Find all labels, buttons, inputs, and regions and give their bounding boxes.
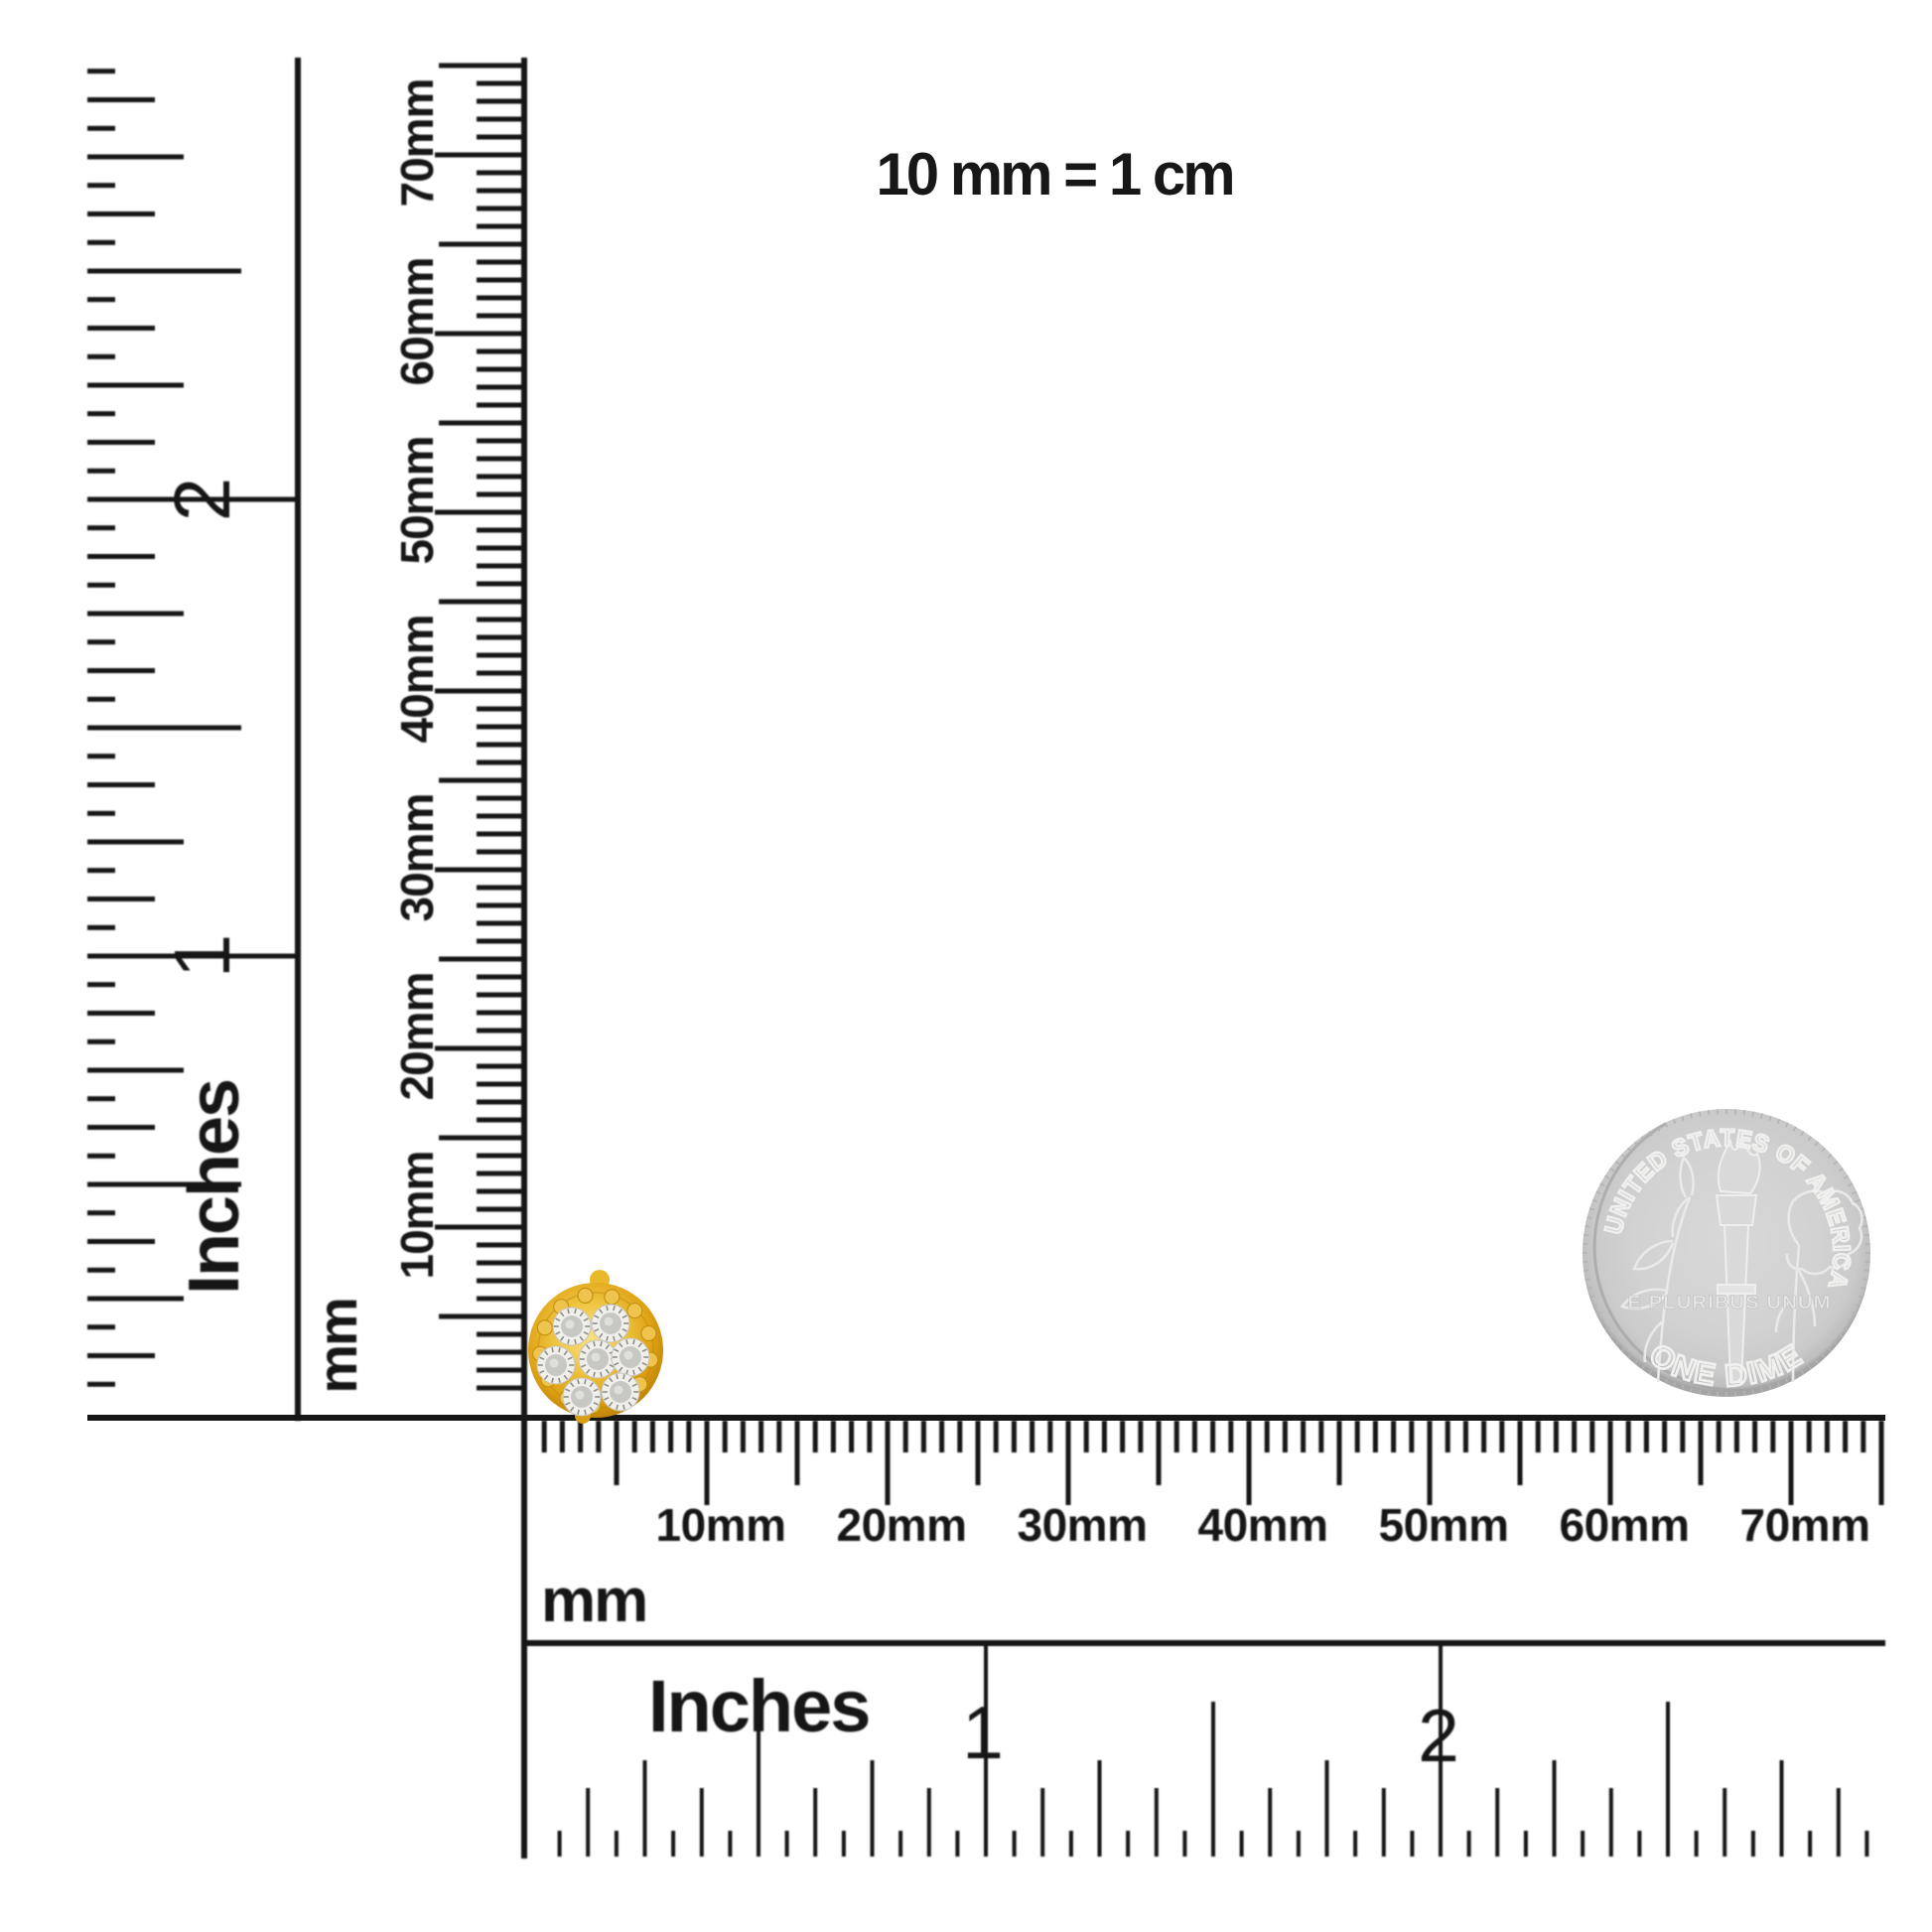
svg-text:1: 1	[962, 1691, 1004, 1774]
svg-text:mm: mm	[306, 1299, 368, 1394]
svg-text:30mm: 30mm	[391, 794, 443, 922]
svg-text:60mm: 60mm	[391, 258, 443, 386]
svg-text:40mm: 40mm	[1198, 1499, 1328, 1551]
svg-text:40mm: 40mm	[391, 616, 443, 744]
svg-text:2: 2	[158, 478, 246, 522]
svg-text:20mm: 20mm	[837, 1499, 967, 1551]
svg-text:1: 1	[158, 934, 246, 979]
svg-text:70mm: 70mm	[1740, 1499, 1870, 1551]
svg-text:20mm: 20mm	[391, 973, 443, 1101]
svg-text:30mm: 30mm	[1018, 1499, 1148, 1551]
svg-text:E PLURIBUS UNUM: E PLURIBUS UNUM	[1628, 1293, 1832, 1312]
svg-text:70mm: 70mm	[391, 79, 443, 207]
svg-text:Inches: Inches	[648, 1665, 869, 1747]
svg-text:10mm: 10mm	[656, 1499, 786, 1551]
svg-text:50mm: 50mm	[1379, 1499, 1509, 1551]
svg-text:60mm: 60mm	[1560, 1499, 1690, 1551]
svg-text:2: 2	[1418, 1694, 1459, 1777]
svg-text:10 mm = 1 cm: 10 mm = 1 cm	[876, 141, 1232, 207]
svg-text:Inches: Inches	[175, 1080, 254, 1295]
svg-text:mm: mm	[541, 1567, 646, 1635]
svg-text:50mm: 50mm	[391, 437, 443, 565]
svg-text:10mm: 10mm	[391, 1152, 443, 1280]
